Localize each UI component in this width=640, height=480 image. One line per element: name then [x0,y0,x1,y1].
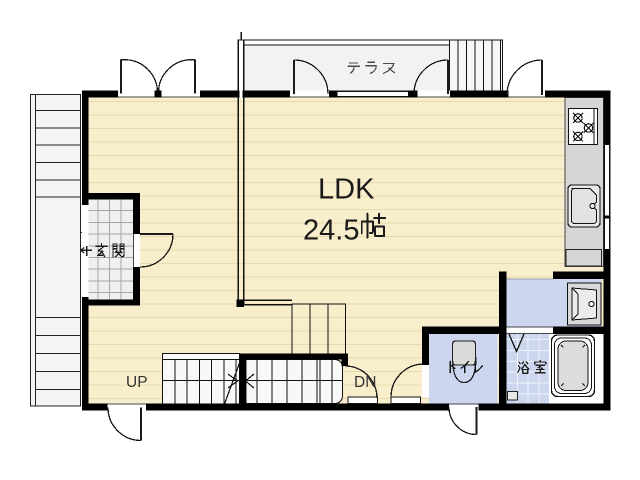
svg-text:DN: DN [354,374,376,391]
svg-text:UP: UP [126,374,148,391]
svg-text:24.5: 24.5 [303,215,359,247]
svg-text:LDK: LDK [318,174,375,206]
